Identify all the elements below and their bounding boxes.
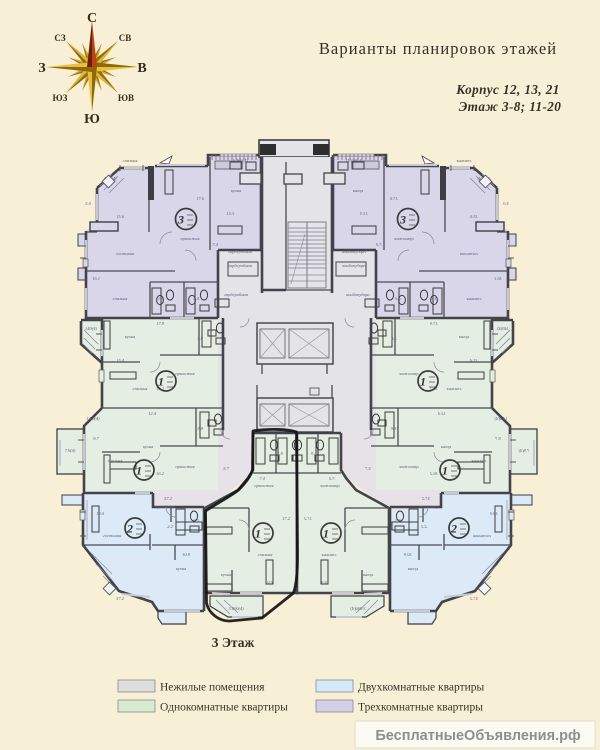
svg-text:57.2: 57.2: [164, 496, 173, 501]
svg-text:СВ: СВ: [119, 33, 132, 43]
svg-text:Этаж 3-8; 11-20: Этаж 3-8; 11-20: [459, 99, 562, 114]
svg-text:кухня: кухня: [231, 188, 241, 193]
svg-text:16.2: 16.2: [156, 471, 165, 476]
svg-text:Варианты планировок этажей: Варианты планировок этажей: [319, 39, 557, 58]
svg-text:кухня: кухня: [143, 444, 153, 449]
svg-text:БесплатныеОбъявления.рф: БесплатныеОбъявления.рф: [375, 728, 581, 744]
svg-text:2: 2: [450, 522, 457, 536]
svg-text:С: С: [87, 11, 97, 26]
svg-text:1: 1: [158, 375, 164, 389]
svg-text:гардеробная: гардеробная: [228, 263, 252, 268]
svg-text:спальня: спальня: [123, 158, 138, 163]
svg-text:кухня: кухня: [221, 572, 231, 577]
svg-text:прихожая: прихожая: [180, 236, 199, 241]
svg-text:7.4: 7.4: [212, 242, 218, 247]
svg-text:2: 2: [126, 522, 133, 536]
svg-text:3.000(4): 3.000(4): [228, 606, 244, 611]
svg-text:1.9: 1.9: [277, 451, 283, 456]
svg-text:19.0: 19.0: [96, 511, 105, 516]
svg-text:В: В: [137, 61, 146, 76]
svg-text:12.4: 12.4: [148, 411, 157, 416]
svg-text:57.2: 57.2: [116, 596, 125, 601]
svg-text:Трехкомнатные квартиры: Трехкомнатные квартиры: [358, 702, 483, 714]
svg-text:гостиная: гостиная: [103, 533, 121, 538]
svg-text:прихожая: прихожая: [155, 504, 174, 509]
svg-text:140(4): 140(4): [85, 326, 97, 331]
svg-text:прихожая: прихожая: [254, 483, 273, 488]
svg-text:13.3: 13.3: [226, 211, 235, 216]
svg-text:17.9: 17.9: [156, 321, 165, 326]
svg-text:гостиная: гостиная: [116, 251, 134, 256]
svg-text:кухня: кухня: [176, 566, 186, 571]
svg-text:СЗ: СЗ: [54, 33, 65, 43]
svg-text:2.2: 2.2: [167, 524, 173, 529]
svg-text:1: 1: [136, 464, 142, 478]
svg-text:гардеробная: гардеробная: [224, 292, 248, 297]
svg-text:5.7: 5.7: [223, 466, 229, 471]
svg-text:14.0(4): 14.0(4): [86, 416, 100, 421]
svg-text:Ю: Ю: [84, 112, 100, 127]
svg-text:17.2: 17.2: [282, 516, 291, 521]
svg-text:3.8: 3.8: [197, 426, 203, 431]
svg-text:15.4: 15.4: [116, 358, 125, 363]
svg-text:3: 3: [399, 213, 406, 227]
svg-text:1: 1: [255, 527, 261, 541]
svg-text:Корпус 12, 13, 21: Корпус 12, 13, 21: [455, 82, 560, 97]
svg-text:спальня: спальня: [258, 552, 273, 557]
svg-text:3.8: 3.8: [197, 336, 203, 341]
svg-text:спальня: спальня: [133, 386, 148, 391]
svg-text:гардеробная: гардеробная: [228, 249, 252, 254]
svg-text:спальня: спальня: [113, 296, 128, 301]
svg-text:10.9: 10.9: [182, 552, 191, 557]
svg-text:прихожая: прихожая: [175, 371, 194, 376]
svg-text:1: 1: [420, 375, 426, 389]
svg-text:3 Этаж: 3 Этаж: [212, 635, 255, 650]
svg-text:5.0: 5.0: [85, 201, 91, 206]
svg-text:ЮВ: ЮВ: [118, 93, 134, 103]
svg-text:1: 1: [442, 464, 448, 478]
svg-text:Двухкомнатные квартиры: Двухкомнатные квартиры: [358, 682, 485, 694]
svg-text:9.7: 9.7: [93, 436, 99, 441]
svg-text:15.6: 15.6: [116, 214, 125, 219]
svg-text:7.4: 7.4: [259, 476, 265, 481]
svg-text:17.6: 17.6: [196, 196, 205, 201]
svg-text:1: 1: [323, 527, 329, 541]
svg-text:7.9(4): 7.9(4): [65, 448, 76, 453]
svg-text:ЮЗ: ЮЗ: [53, 93, 68, 103]
svg-text:Нежилые помещения: Нежилые помещения: [160, 682, 265, 694]
svg-text:3.5: 3.5: [193, 518, 199, 523]
svg-text:кухня: кухня: [125, 334, 135, 339]
svg-text:З: З: [38, 61, 45, 76]
svg-text:3: 3: [177, 213, 184, 227]
svg-text:Однокомнатные квартиры: Однокомнатные квартиры: [160, 702, 288, 714]
svg-text:16.1: 16.1: [92, 276, 100, 281]
svg-text:прихожая: прихожая: [175, 464, 194, 469]
